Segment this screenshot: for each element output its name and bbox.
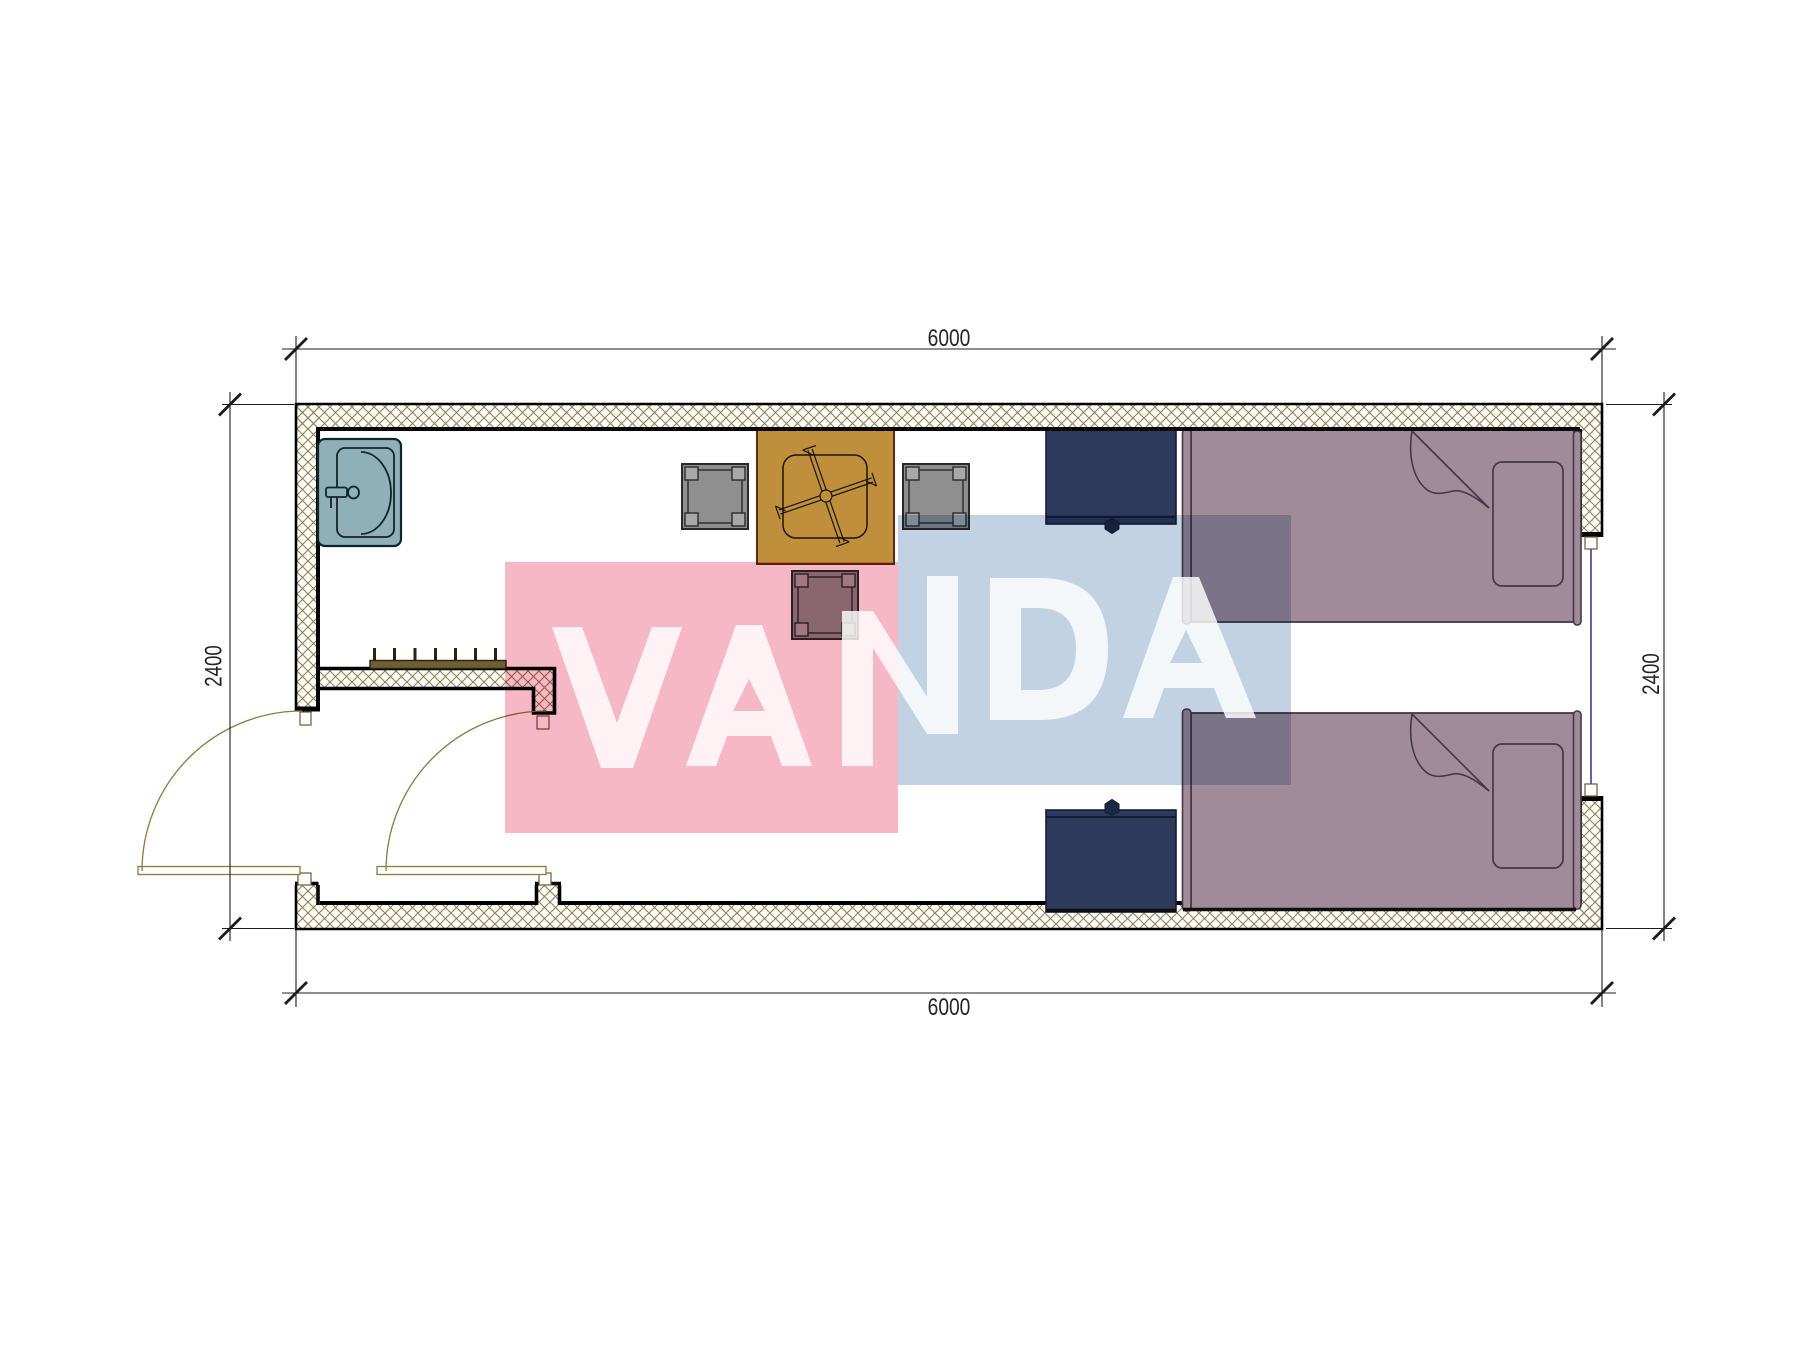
svg-text:2400: 2400 [1638, 653, 1665, 695]
svg-text:2400: 2400 [200, 645, 227, 687]
svg-text:6000: 6000 [928, 993, 971, 1021]
svg-text:6000: 6000 [928, 324, 971, 352]
